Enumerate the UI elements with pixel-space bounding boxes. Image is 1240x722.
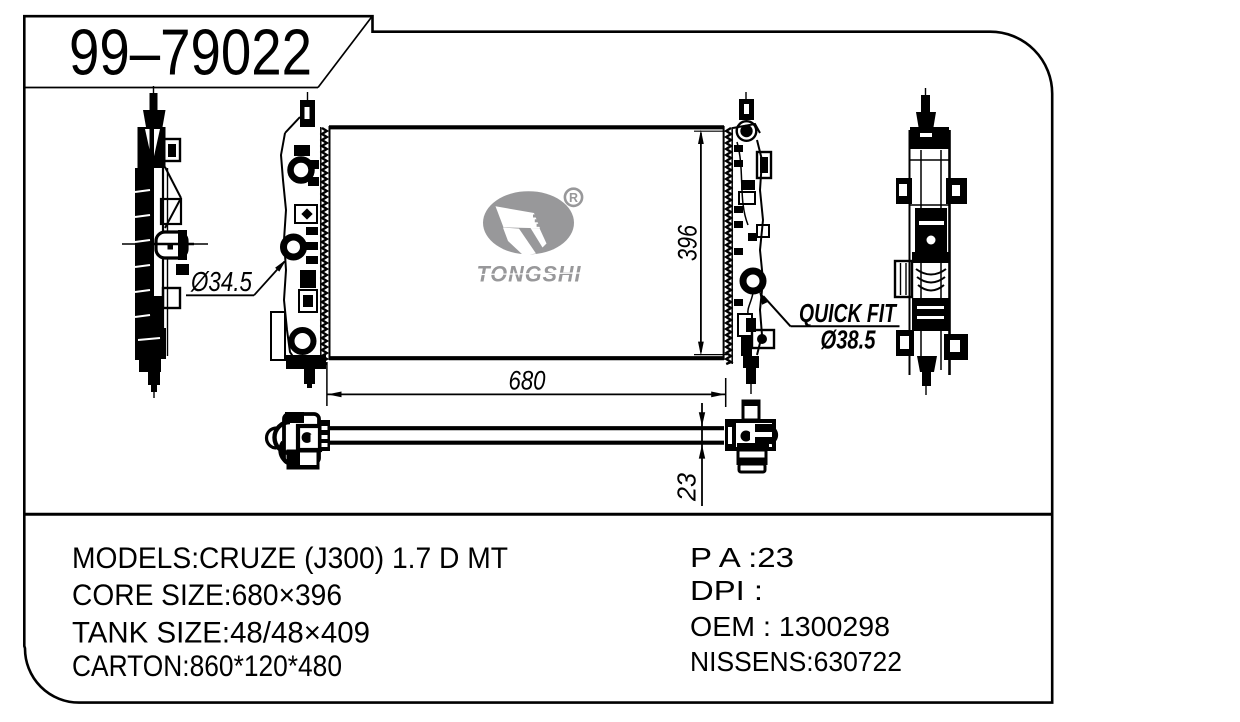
svg-text:P A :23: P A :23 <box>690 542 794 573</box>
svg-text:CORE SIZE:680×396: CORE SIZE:680×396 <box>72 579 342 612</box>
svg-text:23: 23 <box>672 472 702 501</box>
svg-text:99–79022: 99–79022 <box>69 16 312 89</box>
svg-text:Ø34.5: Ø34.5 <box>190 266 252 297</box>
svg-text:R: R <box>569 191 578 205</box>
svg-text:QUICK FIT: QUICK FIT <box>799 298 898 328</box>
svg-text:NISSENS:630722: NISSENS:630722 <box>690 646 902 677</box>
svg-text:CARTON:860*120*480: CARTON:860*120*480 <box>72 650 342 683</box>
svg-text:MODELS:CRUZE (J300) 1.7 D MT: MODELS:CRUZE (J300) 1.7 D MT <box>72 542 508 575</box>
svg-text:Ø38.5: Ø38.5 <box>821 325 876 355</box>
svg-text:OEM : 1300298: OEM : 1300298 <box>690 611 890 642</box>
svg-text:TANK SIZE:48/48×409: TANK SIZE:48/48×409 <box>72 617 370 650</box>
svg-text:680: 680 <box>509 366 546 396</box>
svg-text:DPI :: DPI : <box>690 575 763 606</box>
svg-text:396: 396 <box>673 224 703 261</box>
